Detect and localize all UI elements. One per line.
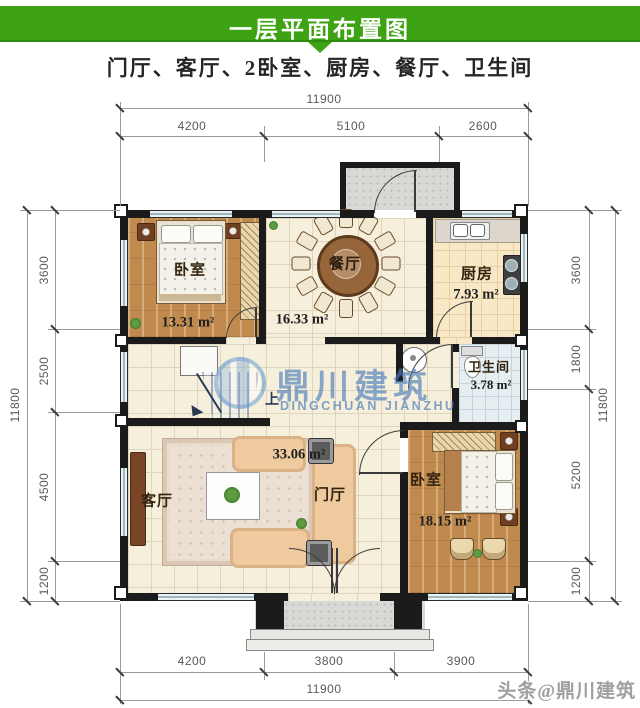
- pilaster: [115, 334, 128, 347]
- dim-label: 1200: [37, 567, 51, 596]
- window: [120, 240, 128, 306]
- mattress: [461, 451, 497, 513]
- wall: [400, 422, 528, 430]
- pillow: [161, 225, 191, 243]
- window: [158, 593, 254, 601]
- sink-basin: [453, 224, 468, 237]
- dim-ext: [48, 561, 120, 562]
- dim-label: 5100: [337, 119, 366, 133]
- dim-label: 3600: [569, 256, 583, 285]
- entry-threshold: [288, 593, 380, 601]
- window: [120, 352, 128, 402]
- door-leaf: [414, 170, 416, 212]
- dim-ext: [528, 329, 596, 330]
- door-leaf: [359, 472, 403, 474]
- dim-ext: [264, 126, 265, 162]
- wall: [340, 162, 460, 168]
- room-area-bedroom1: 13.31 m²: [162, 315, 215, 332]
- room-label-living: 客厅: [141, 490, 173, 511]
- dim-line: [120, 136, 528, 137]
- room-area-bedroom2: 18.15 m²: [419, 514, 472, 531]
- pilaster: [115, 414, 128, 427]
- window: [428, 593, 512, 601]
- dim-label: 2500: [37, 357, 51, 386]
- wardrobe: [432, 432, 496, 452]
- dining-hall-opening: [266, 337, 325, 344]
- dining-chair: [339, 299, 353, 318]
- dim-ext: [48, 329, 120, 330]
- wall: [452, 344, 459, 352]
- wall: [325, 337, 433, 344]
- plant-icon: [224, 487, 240, 503]
- wall: [340, 162, 346, 210]
- dim-ext: [20, 210, 120, 211]
- porch-step: [246, 639, 434, 651]
- bedroom1-door-gap: [226, 337, 256, 344]
- page-title: 一层平面布置图: [0, 10, 640, 44]
- dim-label: 5200: [569, 461, 583, 490]
- dim-label: 4200: [178, 654, 207, 668]
- dim-ext: [120, 604, 121, 704]
- room-label-hall: 门厅: [314, 484, 346, 505]
- dim-line: [120, 700, 528, 701]
- toilet-tank: [461, 346, 483, 356]
- pilaster: [515, 420, 528, 433]
- porch-column: [256, 601, 284, 629]
- dim-ext: [394, 652, 395, 680]
- dim-ext: [528, 210, 622, 211]
- dim-label: 11800: [596, 388, 610, 423]
- window: [520, 350, 528, 400]
- nightstand: [225, 223, 241, 239]
- dim-ext: [264, 652, 265, 680]
- dim-label: 4500: [37, 473, 51, 502]
- hall-cabinet: [180, 346, 218, 376]
- dim-ext: [528, 601, 622, 602]
- dim-line: [120, 672, 528, 673]
- door-leaf: [331, 548, 333, 593]
- dim-label: 4200: [178, 119, 207, 133]
- wall: [454, 162, 460, 210]
- room-label-kitchen: 厨房: [461, 263, 493, 284]
- pillow: [495, 482, 513, 510]
- door-leaf: [336, 548, 338, 593]
- bed-foot: [159, 294, 221, 301]
- dim-label: 3600: [37, 256, 51, 285]
- dim-ext: [528, 561, 596, 562]
- dim-label: 2600: [469, 119, 498, 133]
- dim-ext: [20, 601, 120, 602]
- dim-label: 1800: [569, 345, 583, 374]
- stove-burner: [505, 259, 518, 272]
- chair: [482, 538, 506, 560]
- floor-plan-page: 一层平面布置图 门厅、客厅、2卧室、厨房、餐厅、卫生间: [0, 0, 640, 708]
- pilaster: [515, 334, 528, 347]
- stove-burner: [505, 277, 518, 290]
- dim-line: [589, 210, 590, 601]
- window: [462, 210, 512, 218]
- plant-icon: [130, 318, 141, 329]
- pillow: [495, 453, 513, 481]
- dim-ext: [120, 102, 121, 206]
- nightstand: [500, 432, 518, 450]
- wardrobe: [240, 222, 260, 320]
- pilaster: [514, 204, 528, 218]
- pilaster: [114, 204, 128, 218]
- plant-icon: [269, 221, 278, 230]
- dim-ext: [528, 102, 529, 206]
- room-area-kitchen: 7.93 m²: [453, 287, 498, 304]
- dim-ext: [528, 389, 596, 390]
- sink-basin: [470, 224, 485, 237]
- room-label-bedroom2: 卧室: [410, 469, 442, 490]
- pilaster: [114, 586, 128, 600]
- bed: [444, 450, 516, 514]
- dim-ext: [439, 126, 440, 162]
- watermark-corner-badge: 头条@鼎川建筑: [497, 676, 636, 703]
- dim-label: 11900: [307, 682, 342, 696]
- dim-ext: [48, 412, 120, 413]
- room-list-subtitle: 门厅、客厅、2卧室、厨房、餐厅、卫生间: [0, 52, 640, 82]
- pillow: [193, 225, 223, 243]
- plant-icon: [296, 518, 307, 529]
- watermark-brand-en: DINGCHUAN JIANZHU: [280, 399, 457, 413]
- wall: [426, 210, 433, 344]
- plant-icon: [473, 549, 482, 558]
- wall: [400, 472, 408, 601]
- wall: [433, 337, 440, 344]
- chair: [450, 538, 474, 560]
- nightstand: [137, 223, 155, 241]
- dim-label: 11800: [8, 388, 22, 423]
- window: [120, 468, 128, 536]
- porch-column: [394, 601, 422, 629]
- dim-label: 1200: [569, 567, 583, 596]
- room-area-hall: 33.06 m²: [273, 447, 326, 464]
- window: [520, 234, 528, 282]
- dim-line: [615, 210, 616, 601]
- dim-label: 3800: [315, 654, 344, 668]
- bed-foot: [445, 451, 461, 511]
- wall: [256, 337, 266, 344]
- dim-label: 11900: [307, 92, 342, 106]
- door-leaf: [470, 301, 472, 337]
- wall: [120, 418, 270, 426]
- room-label-bedroom1: 卧室: [174, 259, 206, 280]
- door-leaf: [255, 307, 257, 337]
- watermark-logo-icon: [214, 357, 266, 409]
- kitchen-door-gap: [440, 337, 472, 344]
- dim-line: [27, 210, 28, 601]
- window: [150, 210, 232, 218]
- wall: [120, 337, 226, 344]
- wall: [259, 210, 266, 344]
- dim-line: [120, 108, 528, 109]
- room-area-dining: 16.33 m²: [276, 312, 329, 329]
- dining-chair: [292, 257, 311, 271]
- watermark: 鼎川建筑 DINGCHUAN JIANZHU: [214, 357, 514, 417]
- dining-chair: [382, 257, 401, 271]
- pilaster: [514, 586, 528, 600]
- room-label-dining: 餐厅: [329, 253, 361, 274]
- dim-line: [55, 210, 56, 601]
- window: [272, 210, 340, 218]
- dim-label: 3900: [447, 654, 476, 668]
